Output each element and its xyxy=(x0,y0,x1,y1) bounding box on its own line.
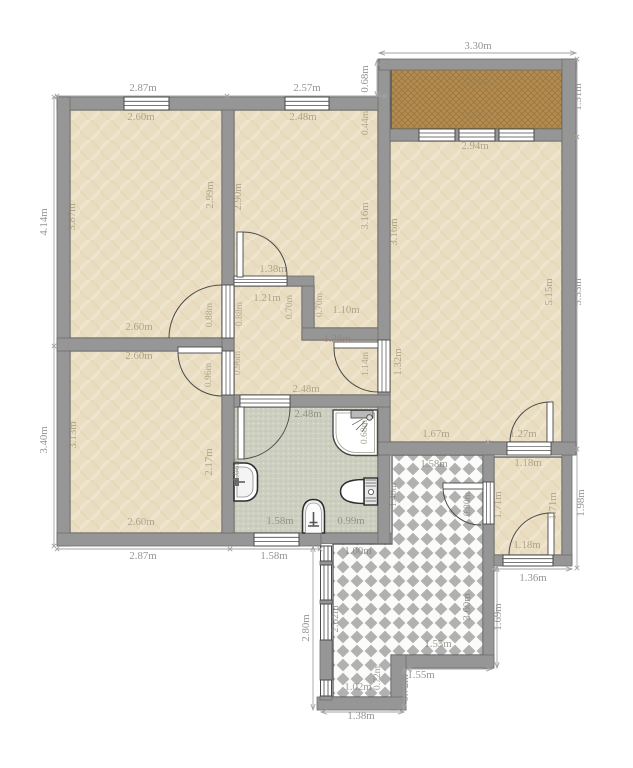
svg-text:1.36m: 1.36m xyxy=(519,572,547,584)
svg-text:3.16m: 3.16m xyxy=(359,202,371,230)
svg-text:2.80m: 2.80m xyxy=(300,614,312,642)
svg-text:0.88m: 0.88m xyxy=(234,301,245,326)
svg-text:1.02m: 1.02m xyxy=(344,681,372,693)
svg-text:1.58m: 1.58m xyxy=(420,458,448,470)
svg-text:0.98m: 0.98m xyxy=(398,86,408,109)
svg-text:0.70m: 0.70m xyxy=(314,292,325,317)
svg-text:2.60m: 2.60m xyxy=(127,111,155,123)
svg-text:0.96m: 0.96m xyxy=(232,350,243,375)
svg-text:3.40m: 3.40m xyxy=(38,426,50,454)
svg-text:2.60m: 2.60m xyxy=(125,321,153,333)
svg-text:2.48m: 2.48m xyxy=(292,383,320,395)
svg-text:1.18m: 1.18m xyxy=(513,539,541,551)
svg-text:1.10m: 1.10m xyxy=(332,304,360,316)
svg-text:0.68m: 0.68m xyxy=(359,419,370,444)
svg-text:3.16m: 3.16m xyxy=(388,218,400,246)
svg-text:2.87m: 2.87m xyxy=(129,550,157,562)
svg-text:5.33m: 5.33m xyxy=(572,278,584,306)
svg-text:0.68m: 0.68m xyxy=(359,65,371,93)
svg-text:2.94m: 2.94m xyxy=(461,140,489,152)
svg-text:1.28m: 1.28m xyxy=(323,333,351,345)
svg-text:2.17m: 2.17m xyxy=(203,448,215,476)
svg-text:4.14m: 4.14m xyxy=(38,208,50,236)
svg-text:1.08m: 1.08m xyxy=(231,457,242,482)
svg-text:0.72m: 0.72m xyxy=(399,674,411,702)
svg-text:1.55m: 1.55m xyxy=(407,669,435,681)
svg-text:0.99m: 0.99m xyxy=(337,515,365,527)
svg-text:3.87m: 3.87m xyxy=(66,203,78,231)
svg-text:0.44m: 0.44m xyxy=(360,110,371,135)
svg-text:1.69m: 1.69m xyxy=(492,603,504,631)
svg-text:1.31m: 1.31m xyxy=(572,83,584,111)
svg-text:2.99m: 2.99m xyxy=(204,181,216,209)
svg-text:1.18m: 1.18m xyxy=(514,457,542,469)
svg-text:2.48m: 2.48m xyxy=(294,408,322,420)
svg-text:0.70m: 0.70m xyxy=(284,294,295,319)
svg-text:2.60m: 2.60m xyxy=(125,350,153,362)
svg-text:2.62m: 2.62m xyxy=(329,605,341,633)
svg-text:0.88m: 0.88m xyxy=(204,302,215,327)
svg-text:1.67m: 1.67m xyxy=(422,428,450,440)
svg-text:2.60m: 2.60m xyxy=(127,516,155,528)
svg-text:1.71m: 1.71m xyxy=(547,492,559,520)
svg-text:1.40m: 1.40m xyxy=(388,482,399,507)
svg-text:2.87m: 2.87m xyxy=(129,82,157,94)
svg-text:2.48m: 2.48m xyxy=(289,111,317,123)
svg-text:2.94m: 2.94m xyxy=(462,75,490,87)
svg-text:1.09m: 1.09m xyxy=(545,85,556,110)
svg-text:2.57m: 2.57m xyxy=(293,82,321,94)
svg-text:2.94m: 2.94m xyxy=(462,109,490,121)
svg-text:1.00m: 1.00m xyxy=(344,545,372,557)
svg-text:3.30m: 3.30m xyxy=(464,40,492,52)
svg-text:1.21m: 1.21m xyxy=(253,292,281,304)
svg-text:3.60m: 3.60m xyxy=(461,593,473,621)
svg-text:1.14m: 1.14m xyxy=(360,351,371,376)
svg-text:2.90m: 2.90m xyxy=(232,183,244,211)
svg-text:1.98m: 1.98m xyxy=(575,489,587,517)
svg-text:5.15m: 5.15m xyxy=(543,278,555,306)
svg-text:1.27m: 1.27m xyxy=(509,428,537,440)
svg-text:1.71m: 1.71m xyxy=(492,491,504,519)
svg-text:1.58m: 1.58m xyxy=(260,550,288,562)
svg-text:0.72m: 0.72m xyxy=(372,665,383,690)
svg-text:1.38m: 1.38m xyxy=(259,263,287,275)
svg-text:1.38m: 1.38m xyxy=(347,710,375,722)
svg-text:1.55m: 1.55m xyxy=(424,638,452,650)
svg-text:3.13m: 3.13m xyxy=(67,421,79,449)
svg-text:0.96m: 0.96m xyxy=(203,362,214,387)
svg-text:1.58m: 1.58m xyxy=(266,515,294,527)
svg-text:1.32m: 1.32m xyxy=(392,348,404,376)
svg-text:0.80m: 0.80m xyxy=(462,491,473,516)
